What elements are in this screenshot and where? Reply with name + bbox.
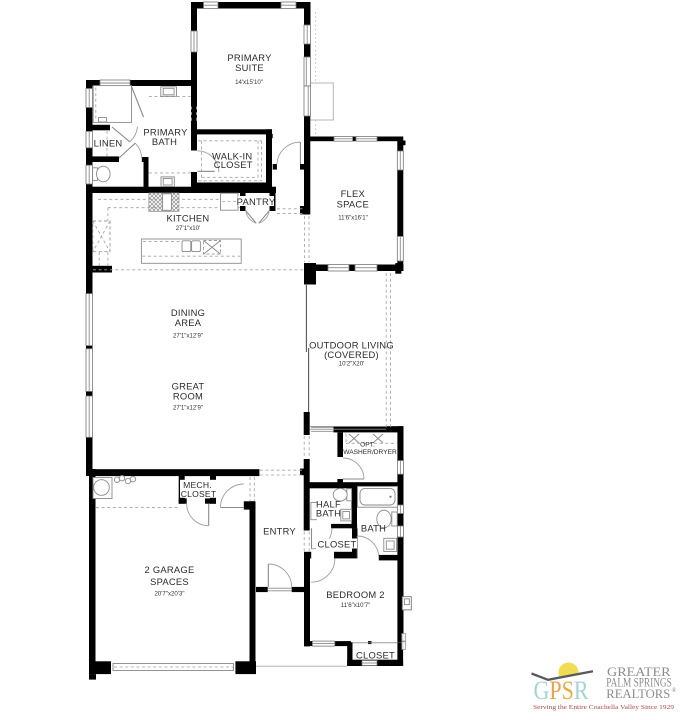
svg-text:20'7"x20'3": 20'7"x20'3" — [154, 591, 184, 598]
svg-text:BATH: BATH — [316, 508, 341, 519]
svg-text:CLOSET: CLOSET — [317, 539, 356, 550]
svg-text:BEDROOM 2: BEDROOM 2 — [326, 589, 385, 600]
svg-text:BATH: BATH — [361, 523, 386, 534]
svg-text:CLOSET: CLOSET — [356, 650, 395, 661]
svg-text:ROOM: ROOM — [173, 391, 203, 402]
svg-text:11'6"x16'1": 11'6"x16'1" — [338, 215, 368, 222]
svg-text:CLOSET: CLOSET — [214, 159, 253, 170]
svg-text:2 GARAGE: 2 GARAGE — [145, 564, 195, 575]
svg-text:OPT.: OPT. — [360, 442, 375, 449]
svg-text:BATH: BATH — [152, 136, 177, 147]
svg-text:WASHER/DRYER: WASHER/DRYER — [343, 449, 397, 456]
svg-text:11'6"x10'7": 11'6"x10'7" — [341, 602, 371, 609]
svg-text:AREA: AREA — [175, 317, 202, 328]
svg-text:27'1"x12'9": 27'1"x12'9" — [173, 333, 203, 340]
svg-text:PANTRY: PANTRY — [237, 196, 276, 207]
svg-text:SPACES: SPACES — [150, 576, 189, 587]
svg-text:REALTORS: REALTORS — [606, 687, 670, 701]
svg-text:LINEN: LINEN — [94, 137, 123, 148]
svg-text:CLOSET: CLOSET — [181, 489, 217, 499]
svg-text:Serving the Entire Coachella V: Serving the Entire Coachella Valley Sinc… — [533, 704, 675, 711]
svg-text:27'1"x12'9": 27'1"x12'9" — [173, 405, 203, 412]
svg-text:14'x15'10": 14'x15'10" — [235, 79, 263, 86]
svg-text:10'2"X20': 10'2"X20' — [339, 361, 365, 368]
svg-text:FLEX: FLEX — [341, 188, 366, 199]
svg-text:27'1"x10': 27'1"x10' — [176, 225, 200, 232]
svg-text:ENTRY: ENTRY — [263, 526, 296, 537]
svg-text:®: ® — [672, 687, 677, 694]
svg-text:SPACE: SPACE — [337, 199, 369, 210]
svg-text:SUITE: SUITE — [235, 62, 264, 73]
svg-text:(COVERED): (COVERED) — [324, 349, 379, 360]
svg-text:GPSR: GPSR — [534, 676, 590, 705]
svg-text:KITCHEN: KITCHEN — [167, 213, 210, 224]
